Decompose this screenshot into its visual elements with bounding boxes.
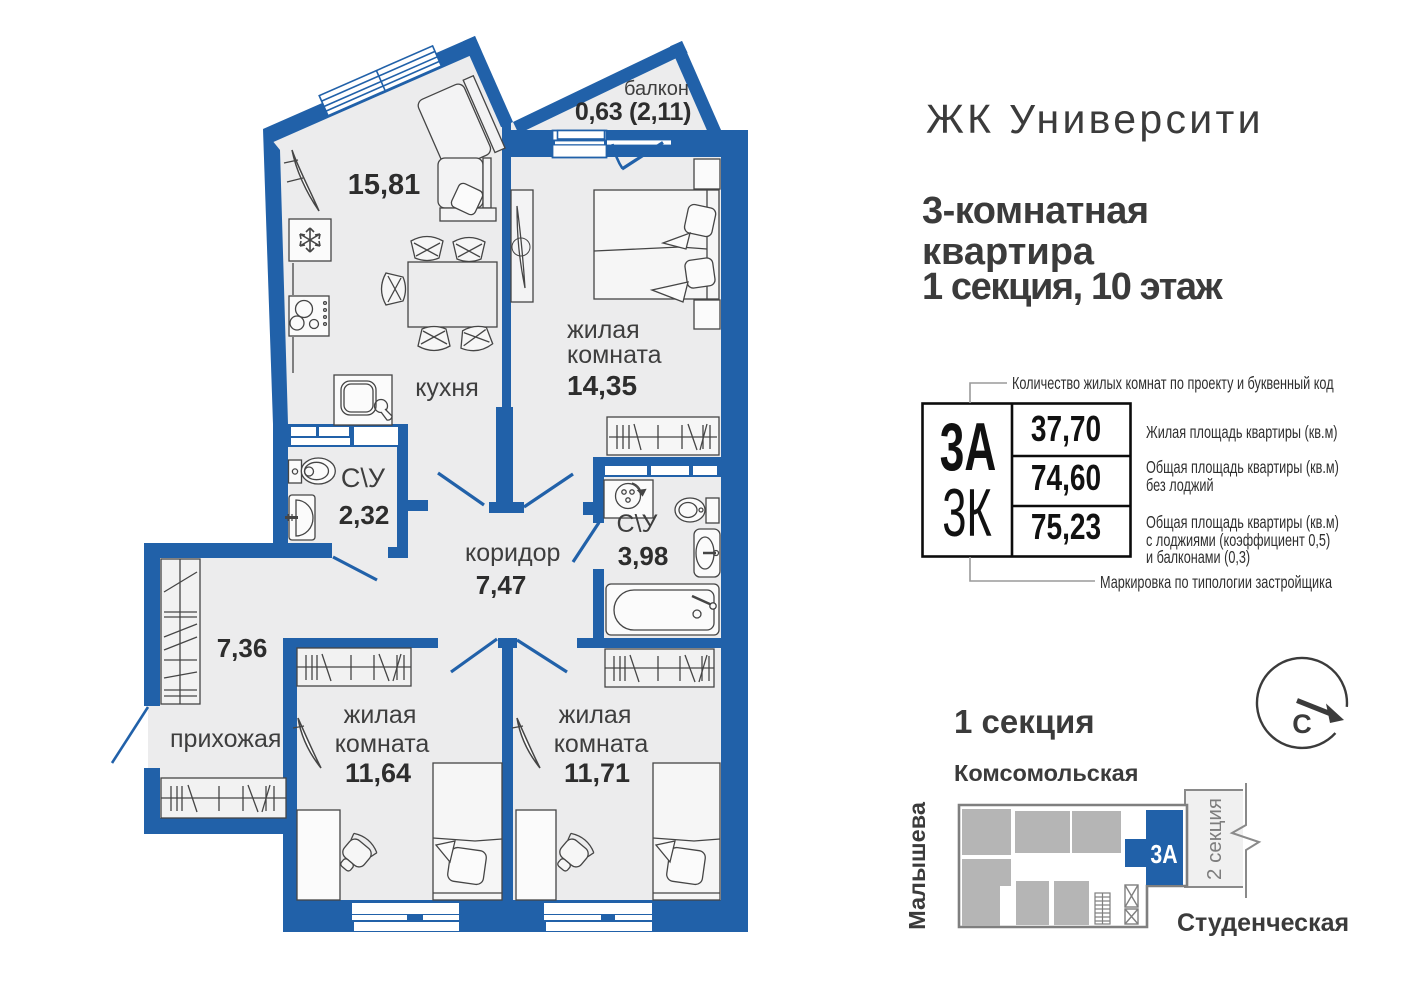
svg-text:3,98: 3,98 [618, 541, 669, 571]
svg-text:жилая: жилая [567, 316, 640, 344]
svg-text:прихожая: прихожая [170, 725, 281, 753]
svg-text:7,36: 7,36 [217, 633, 268, 663]
svg-text:1 секция: 1 секция [954, 703, 1095, 740]
svg-text:14,35: 14,35 [567, 370, 637, 401]
svg-text:комната: комната [567, 341, 662, 369]
svg-text:1 секция, 10 этаж: 1 секция, 10 этаж [922, 266, 1224, 308]
svg-text:3К: 3К [942, 475, 992, 551]
svg-text:11,71: 11,71 [564, 758, 630, 788]
svg-text:С\У: С\У [617, 510, 658, 538]
svg-text:2 секция: 2 секция [1203, 798, 1226, 880]
svg-text:С\У: С\У [341, 463, 386, 493]
svg-text:2,32: 2,32 [339, 500, 390, 530]
svg-text:11,64: 11,64 [345, 758, 411, 788]
svg-text:коридор: коридор [465, 539, 560, 567]
svg-text:Жилая площадь квартиры (кв.м): Жилая площадь квартиры (кв.м) [1146, 423, 1338, 442]
svg-text:и балконами (0,3): и балконами (0,3) [1146, 548, 1250, 567]
svg-text:жилая: жилая [559, 701, 632, 729]
svg-text:комната: комната [335, 730, 430, 758]
svg-text:37,70: 37,70 [1031, 409, 1101, 449]
svg-text:Общая площадь квартиры (кв.м): Общая площадь квартиры (кв.м) [1146, 513, 1339, 532]
svg-text:кухня: кухня [415, 374, 479, 402]
svg-text:Малышева: Малышева [904, 801, 930, 930]
svg-text:3А: 3А [940, 410, 996, 486]
svg-text:15,81: 15,81 [348, 169, 421, 201]
svg-text:Количество жилых комнат по про: Количество жилых комнат по проекту и бук… [1012, 374, 1334, 393]
svg-text:74,60: 74,60 [1031, 458, 1101, 498]
svg-text:ЖК Университи: ЖК Университи [926, 96, 1264, 142]
svg-text:7,47: 7,47 [476, 570, 527, 600]
svg-text:75,23: 75,23 [1031, 507, 1101, 547]
svg-text:комната: комната [554, 730, 649, 758]
svg-text:балкон: балкон [624, 78, 689, 100]
svg-text:без лоджий: без лоджий [1146, 476, 1214, 495]
svg-text:3-комнатная: 3-комнатная [922, 190, 1149, 232]
svg-text:Общая площадь квартиры (кв.м): Общая площадь квартиры (кв.м) [1146, 458, 1339, 477]
svg-text:Студенческая: Студенческая [1177, 909, 1349, 937]
svg-text:Маркировка по типологии застро: Маркировка по типологии застройщика [1100, 573, 1332, 592]
svg-text:3А: 3А [1150, 840, 1177, 870]
svg-text:0,63 (2,11): 0,63 (2,11) [575, 98, 691, 126]
svg-text:С: С [1292, 709, 1312, 739]
svg-text:жилая: жилая [344, 701, 417, 729]
svg-text:Комсомольская: Комсомольская [954, 760, 1138, 786]
